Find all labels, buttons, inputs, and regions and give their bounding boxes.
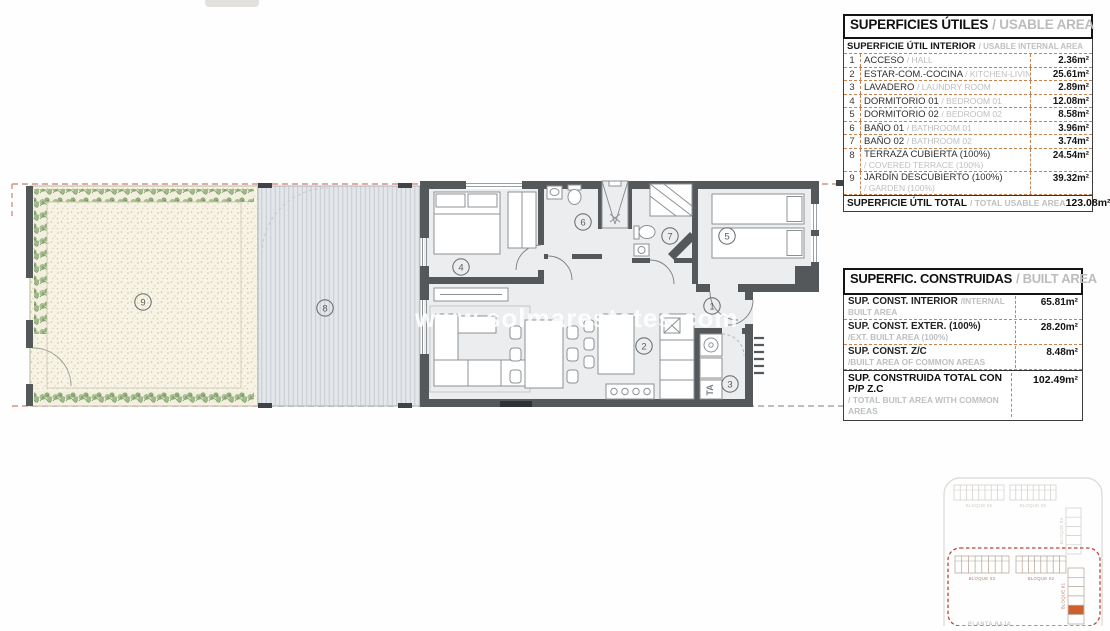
floorplan-page: { "floorplan": { "watermark": "www.solma… — [0, 0, 1110, 626]
block-02-grid — [1016, 556, 1066, 573]
row-label-en: /EXT. BUILT AREA (100%) — [848, 332, 1015, 343]
subheader-en: / USABLE INTERNAL AREA — [979, 42, 1083, 51]
watermark: www.solmarestates.com — [414, 303, 739, 333]
row-label-en: / COVERED TERRACE (100%) — [864, 160, 1030, 170]
row-num: 6 — [844, 122, 861, 135]
svg-text:7: 7 — [667, 232, 672, 243]
block-04-grid — [1066, 508, 1081, 554]
table-row: 4 DORMITORIO 01 / BEDROOM 01 12.08m² — [844, 95, 1092, 109]
table-row: 2 ESTAR-COM.-COCINA / KITCHEN-LIVING 25.… — [844, 68, 1092, 82]
row-num: 1 — [844, 54, 861, 67]
built-area-body: SUP. CONST. INTERIOR /INTERNAL BUILT ARE… — [843, 295, 1083, 421]
table-row: 9 JARDÍN DESCUBIERTO (100%)/ GARDEN (100… — [844, 172, 1092, 195]
row-label-es: SUP. CONST. INTERIOR — [848, 296, 958, 307]
block-06-label: BLOQUE 06 — [966, 503, 993, 508]
title-es: SUPERFICIES ÚTILES — [850, 17, 988, 32]
built-area-table: SUPERFIC. CONSTRUIDAS / BUILT AREA SUP. … — [843, 268, 1083, 421]
row-value: 65.81m² — [1015, 296, 1082, 318]
table-row: SUP. CONST. EXTER. (100%)/EXT. BUILT ARE… — [844, 320, 1082, 345]
title-en: / BUILT AREA — [1016, 271, 1097, 286]
row-label-es: ESTAR-COM.-COCINA — [864, 69, 963, 80]
table-row: 5 DORMITORIO 02 / BEDROOM 02 8.58m² — [844, 108, 1092, 122]
usable-area-body: SUPERFICIE ÚTIL INTERIOR / USABLE INTERN… — [843, 39, 1093, 212]
floor-plan-svg: TA 9 8 4 6 7 5 1 — [0, 170, 870, 420]
row-label-es: JARDÍN DESCUBIERTO (100%) — [864, 172, 1003, 183]
site-key-plan-svg: BLOQUE 06 BLOQUE 05 BLOQUE 04 BLOQUE 03 … — [938, 474, 1110, 626]
block-03-grid — [955, 556, 1009, 573]
row-label-es: DORMITORIO 02 — [864, 109, 939, 120]
row-label-en: / GARDEN (100%) — [864, 183, 1030, 193]
built-area-total-row: SUP. CONSTRUIDA TOTAL CON P/P Z.C / TOTA… — [844, 370, 1082, 420]
row-value: 3.96m² — [1030, 122, 1092, 135]
usable-area-table: SUPERFICIES ÚTILES / USABLE AREA SUPERFI… — [843, 14, 1093, 212]
row-label-es: DORMITORIO 01 — [864, 96, 939, 107]
row-value: 8.48m² — [1015, 346, 1082, 368]
row-label-es: BAÑO 02 — [864, 136, 904, 147]
usable-area-subheader: SUPERFICIE ÚTIL INTERIOR / USABLE INTERN… — [844, 39, 1092, 54]
row-label-es: TERRAZA CUBIERTA (100%) — [864, 149, 990, 160]
usable-area-total-row: SUPERFICIE ÚTIL TOTAL / TOTAL USABLE ARE… — [844, 195, 1092, 211]
row-value: 28.20m² — [1015, 321, 1082, 343]
row-label-en: /BUILT AREA OF COMMON AREAS — [848, 357, 1015, 368]
row-label-en: / KITCHEN-LIVING — [965, 69, 1030, 79]
row-value: 2.89m² — [1030, 81, 1092, 94]
row-label-en: / BATHROOM 01 — [907, 123, 972, 133]
row-value: 2.36m² — [1030, 54, 1092, 67]
row-num: 7 — [844, 135, 861, 148]
row-label-es: BAÑO 01 — [864, 123, 904, 134]
row-num: 3 — [844, 81, 861, 94]
row-label-en: / LAUNDRY ROOM — [917, 82, 991, 92]
svg-text:8: 8 — [322, 304, 327, 315]
floor-plan: TA 9 8 4 6 7 5 1 — [0, 170, 870, 420]
svg-text:9: 9 — [140, 298, 145, 309]
shower-stall — [602, 181, 628, 228]
table-row: 6 BAÑO 01 / BATHROOM 01 3.96m² — [844, 122, 1092, 136]
block-03-label: BLOQUE 03 — [969, 576, 996, 581]
row-value: 39.32m² — [1030, 172, 1092, 194]
row-label-en: / BEDROOM 01 — [941, 96, 1001, 106]
row-label-en: / HALL — [907, 55, 933, 65]
row-value: 3.74m² — [1030, 135, 1092, 148]
terrace-area — [258, 183, 420, 408]
svg-text:6: 6 — [580, 218, 585, 229]
row-value: 12.08m² — [1030, 95, 1092, 108]
stove — [606, 384, 654, 399]
table-row: 7 BAÑO 02 / BATHROOM 02 3.74m² — [844, 135, 1092, 149]
row-label-es: LAVADERO — [864, 82, 914, 93]
total-label-en: / TOTAL USABLE AREA — [970, 198, 1066, 208]
block-05-grid — [1010, 485, 1056, 500]
row-label-es: SUP. CONST. EXTER. (100%) — [848, 321, 981, 332]
row-label-en: / BEDROOM 02 — [941, 109, 1001, 119]
cropped-logo-fragment — [205, 0, 259, 7]
block-04-label: BLOQUE 04 — [1059, 517, 1064, 544]
floor-label: PLANTA BAJA — [968, 622, 1011, 627]
svg-text:3: 3 — [727, 380, 732, 391]
table-row: SUP. CONST. Z/C/BUILT AREA OF COMMON ARE… — [844, 345, 1082, 370]
total-label-es: SUPERFICIE ÚTIL TOTAL — [847, 198, 967, 209]
bed-double — [434, 192, 500, 254]
block-01-grid — [1068, 568, 1084, 624]
table-row: SUP. CONST. INTERIOR /INTERNAL BUILT ARE… — [844, 295, 1082, 320]
title-en: / USABLE AREA — [992, 17, 1094, 32]
row-value: 25.61m² — [1030, 68, 1092, 81]
table-row: 1 ACCESO / HALL 2.36m² — [844, 54, 1092, 68]
svg-text:5: 5 — [724, 232, 729, 243]
block-06-grid — [954, 485, 1004, 500]
row-num: 2 — [844, 68, 861, 81]
row-num: 4 — [844, 95, 861, 108]
total-label-es: SUP. CONSTRUIDA TOTAL CON P/P Z.C — [848, 373, 1002, 395]
site-key-plan: BLOQUE 06 BLOQUE 05 BLOQUE 04 BLOQUE 03 … — [938, 474, 1110, 626]
row-num: 5 — [844, 108, 861, 121]
total-value: 102.49m² — [1011, 373, 1082, 417]
title-es: SUPERFIC. CONSTRUIDAS — [850, 271, 1012, 286]
subheader-es: SUPERFICIE ÚTIL INTERIOR — [847, 41, 976, 52]
total-label-en: / TOTAL BUILT AREA WITH COMMON AREAS — [848, 395, 1011, 417]
built-area-title: SUPERFIC. CONSTRUIDAS / BUILT AREA — [843, 268, 1083, 295]
wardrobe — [508, 192, 536, 248]
sideboard — [434, 288, 508, 301]
table-row: 8 TERRAZA CUBIERTA (100%)/ COVERED TERRA… — [844, 149, 1092, 172]
block-01-label: BLOQUE 01 — [1061, 582, 1066, 609]
hedge-bottom — [34, 391, 254, 404]
block-02-label: BLOQUE 02 — [1028, 576, 1055, 581]
row-num: 9 — [844, 172, 861, 194]
ta-label: TA — [705, 384, 715, 396]
total-value: 123.08m² — [1066, 197, 1110, 209]
row-num: 8 — [844, 149, 861, 171]
row-value: 8.58m² — [1030, 108, 1092, 121]
table-row: 3 LAVADERO / LAUNDRY ROOM 2.89m² — [844, 81, 1092, 95]
row-label-en: / BATHROOM 02 — [907, 136, 972, 146]
hedge-top — [34, 189, 254, 202]
row-label-es: ACCESO — [864, 55, 904, 66]
highlighted-unit — [1068, 606, 1083, 615]
block-05-label: BLOQUE 05 — [1020, 503, 1047, 508]
row-label-es: SUP. CONST. Z/C — [848, 346, 927, 357]
svg-text:4: 4 — [458, 263, 463, 274]
hedge-left — [34, 189, 47, 334]
svg-text:2: 2 — [641, 342, 646, 353]
exterior-hatch — [754, 338, 764, 373]
garden-area — [26, 186, 258, 406]
row-value: 24.54m² — [1030, 149, 1092, 171]
usable-area-title: SUPERFICIES ÚTILES / USABLE AREA — [843, 14, 1093, 39]
